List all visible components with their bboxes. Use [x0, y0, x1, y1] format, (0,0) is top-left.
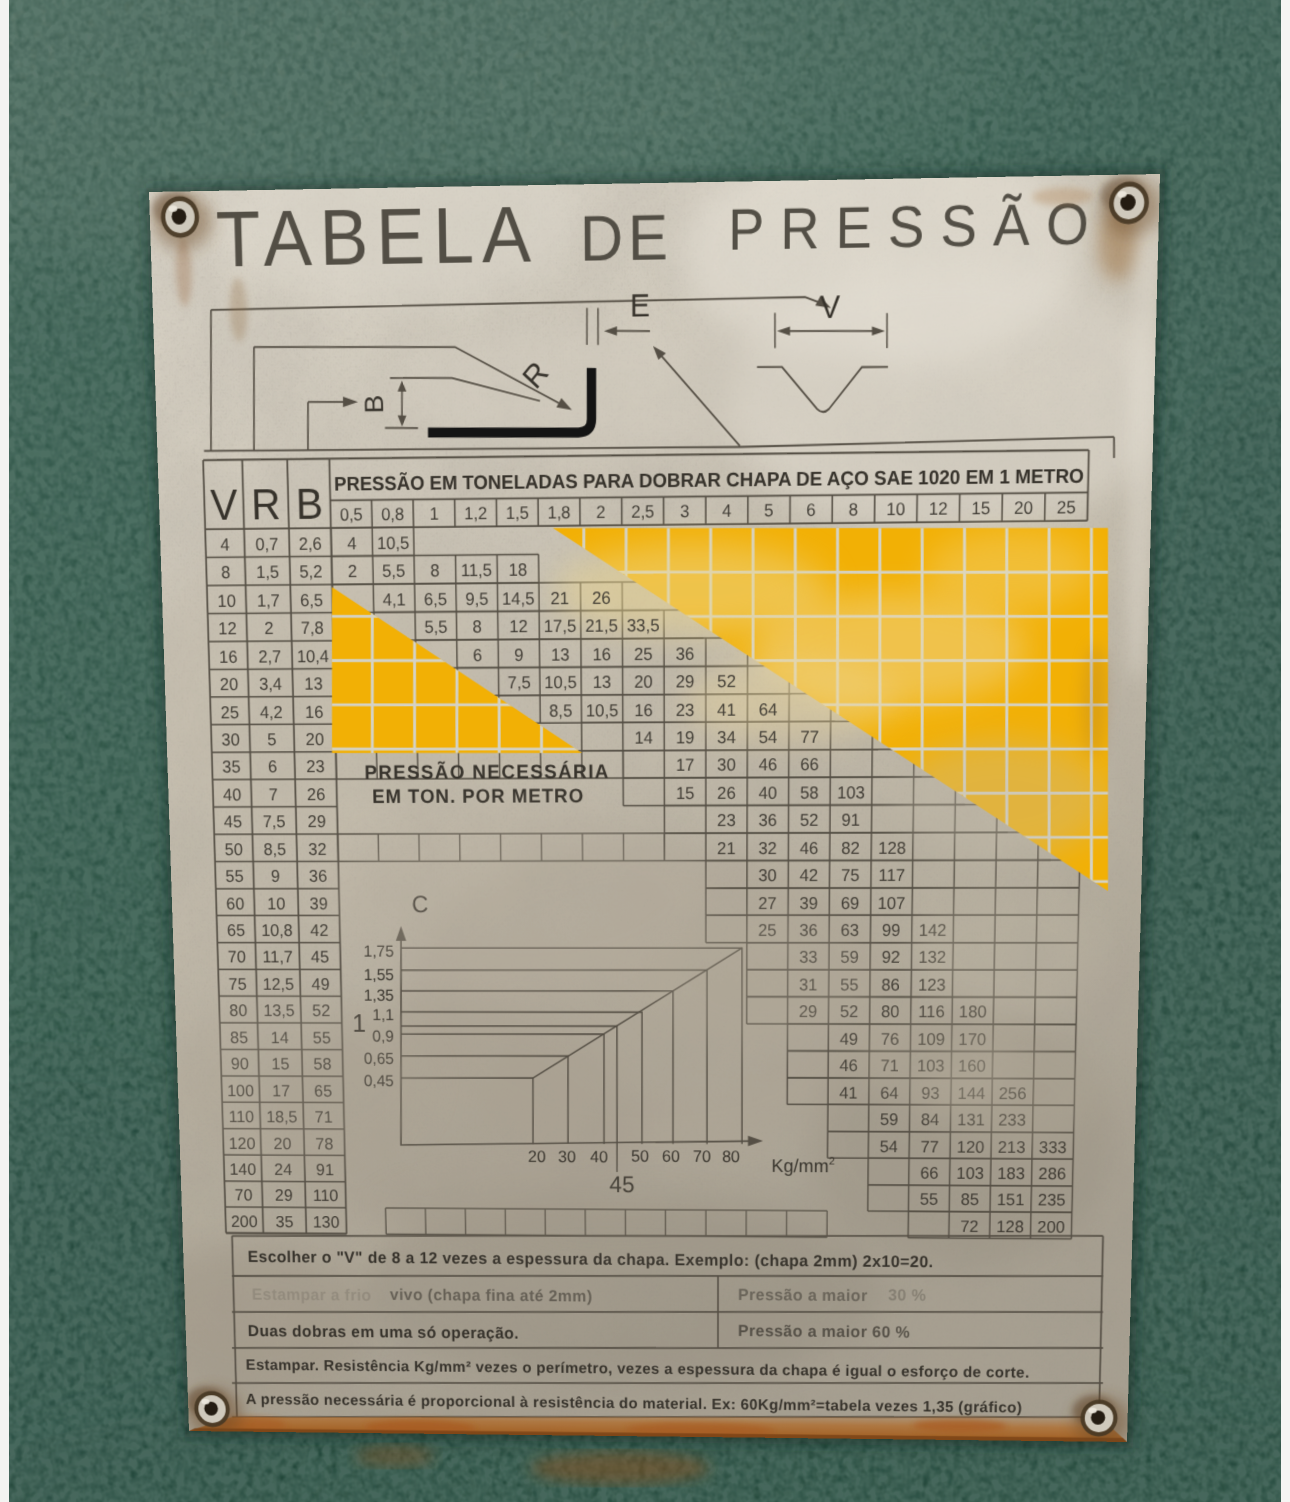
svg-text:25: 25: [1057, 497, 1076, 517]
svg-text:64: 64: [759, 699, 778, 720]
svg-text:10,4: 10,4: [297, 645, 330, 666]
svg-text:41: 41: [839, 1082, 857, 1102]
svg-text:151: 151: [997, 1190, 1025, 1210]
svg-text:13: 13: [593, 672, 612, 693]
svg-text:10,8: 10,8: [261, 920, 293, 940]
svg-text:9,5: 9,5: [465, 588, 488, 609]
svg-text:1,8: 1,8: [547, 502, 570, 522]
svg-text:29: 29: [676, 671, 695, 692]
svg-text:30: 30: [717, 755, 736, 775]
svg-text:1,5: 1,5: [256, 562, 280, 583]
svg-text:39: 39: [309, 893, 328, 913]
svg-text:1,7: 1,7: [257, 590, 280, 611]
svg-text:21: 21: [717, 838, 735, 858]
svg-text:13: 13: [551, 644, 570, 665]
svg-text:7,8: 7,8: [301, 618, 324, 639]
svg-text:25: 25: [634, 643, 653, 664]
svg-text:128: 128: [996, 1217, 1024, 1236]
svg-text:4: 4: [722, 501, 731, 521]
svg-text:99: 99: [882, 920, 901, 940]
svg-text:16: 16: [305, 701, 324, 721]
svg-text:1,55: 1,55: [363, 966, 394, 984]
svg-text:36: 36: [758, 810, 777, 830]
svg-text:72: 72: [960, 1216, 979, 1235]
svg-text:91: 91: [841, 810, 860, 830]
svg-text:15: 15: [971, 498, 990, 518]
svg-text:1: 1: [429, 504, 439, 524]
svg-text:46: 46: [800, 838, 819, 858]
svg-text:40: 40: [223, 784, 242, 804]
svg-text:2,7: 2,7: [258, 646, 281, 666]
svg-text:B: B: [359, 394, 389, 413]
svg-text:V: V: [210, 480, 238, 529]
svg-text:23: 23: [676, 699, 695, 719]
svg-text:16: 16: [219, 646, 238, 666]
svg-text:45: 45: [311, 947, 329, 967]
svg-text:86: 86: [881, 975, 900, 995]
svg-text:70: 70: [234, 1186, 252, 1205]
svg-text:41: 41: [717, 699, 736, 719]
svg-text:29: 29: [275, 1186, 293, 1205]
svg-text:128: 128: [878, 837, 906, 857]
svg-text:V: V: [820, 290, 840, 326]
svg-text:26: 26: [592, 587, 611, 608]
svg-text:14: 14: [634, 727, 653, 747]
svg-text:10,5: 10,5: [377, 532, 410, 553]
svg-text:1,2: 1,2: [464, 503, 487, 523]
svg-text:60: 60: [662, 1148, 680, 1166]
svg-text:2: 2: [348, 561, 358, 582]
svg-text:vivo (chapa fina até 2mm): vivo (chapa fina até 2mm): [390, 1286, 593, 1306]
svg-text:25: 25: [220, 702, 239, 722]
svg-text:12: 12: [218, 618, 237, 638]
svg-text:200: 200: [1037, 1217, 1065, 1236]
svg-text:69: 69: [841, 893, 860, 913]
svg-text:46: 46: [759, 755, 778, 775]
svg-text:4,2: 4,2: [260, 701, 283, 721]
svg-text:6: 6: [268, 757, 278, 777]
svg-text:11,5: 11,5: [461, 560, 493, 581]
svg-text:75: 75: [841, 865, 860, 885]
svg-text:20: 20: [1014, 498, 1033, 518]
svg-text:Estampar a frio: Estampar a frio: [252, 1286, 372, 1305]
svg-text:6,5: 6,5: [300, 590, 323, 611]
svg-text:85: 85: [960, 1190, 979, 1209]
svg-text:15: 15: [676, 783, 695, 803]
svg-text:23: 23: [306, 756, 325, 776]
svg-text:0,8: 0,8: [381, 504, 404, 524]
svg-text:59: 59: [880, 1109, 899, 1129]
svg-text:Pressão a maior 60 %: Pressão a maior 60 %: [738, 1322, 910, 1342]
svg-text:10: 10: [886, 499, 905, 519]
svg-text:35: 35: [275, 1212, 293, 1231]
svg-text:103: 103: [956, 1163, 984, 1183]
svg-text:130: 130: [313, 1212, 340, 1231]
svg-text:3: 3: [680, 501, 689, 521]
svg-text:27: 27: [758, 893, 777, 913]
svg-text:45: 45: [224, 812, 243, 832]
svg-text:70: 70: [228, 947, 246, 967]
svg-text:14,5: 14,5: [502, 588, 535, 609]
svg-text:6: 6: [806, 500, 815, 520]
svg-text:32: 32: [758, 838, 777, 858]
svg-text:183: 183: [997, 1163, 1025, 1183]
svg-text:50: 50: [631, 1147, 649, 1165]
svg-text:26: 26: [717, 782, 736, 802]
svg-text:21,5: 21,5: [585, 615, 618, 636]
svg-text:34: 34: [717, 727, 736, 747]
svg-text:10,5: 10,5: [586, 700, 619, 721]
svg-text:TABELA: TABELA: [215, 189, 539, 283]
svg-text:1,35: 1,35: [363, 987, 394, 1005]
svg-text:EM TON. POR METRO: EM TON. POR METRO: [372, 786, 584, 809]
svg-text:21: 21: [550, 587, 569, 608]
svg-text:20: 20: [634, 671, 653, 692]
svg-text:20: 20: [305, 729, 324, 749]
svg-text:60: 60: [226, 893, 245, 913]
svg-text:80: 80: [722, 1147, 740, 1165]
svg-text:110: 110: [313, 1186, 339, 1205]
svg-text:20: 20: [528, 1148, 546, 1166]
svg-text:10: 10: [217, 590, 236, 611]
svg-text:20: 20: [220, 674, 239, 694]
svg-text:Pressão a maior: Pressão a maior: [738, 1286, 868, 1305]
svg-text:5: 5: [764, 500, 773, 520]
svg-text:65: 65: [227, 920, 246, 940]
svg-text:7,5: 7,5: [508, 672, 531, 692]
svg-text:2: 2: [829, 1155, 835, 1167]
svg-text:39: 39: [799, 893, 818, 913]
svg-text:30 %: 30 %: [888, 1286, 926, 1304]
svg-text:235: 235: [1038, 1190, 1066, 1210]
svg-text:3,4: 3,4: [259, 674, 283, 694]
svg-text:13: 13: [304, 673, 323, 693]
svg-text:103: 103: [837, 782, 865, 802]
svg-text:10,5: 10,5: [544, 672, 577, 693]
svg-text:66: 66: [800, 754, 819, 774]
svg-text:35: 35: [222, 757, 241, 777]
svg-text:8: 8: [221, 562, 231, 583]
svg-text:117: 117: [878, 865, 905, 885]
svg-text:0,7: 0,7: [255, 533, 279, 554]
svg-text:75: 75: [228, 974, 246, 994]
svg-text:30: 30: [758, 865, 777, 885]
svg-text:8: 8: [430, 560, 440, 581]
svg-text:R: R: [251, 480, 282, 529]
svg-text:140: 140: [229, 1159, 256, 1178]
svg-text:66: 66: [920, 1163, 939, 1182]
svg-text:10: 10: [267, 893, 286, 913]
svg-text:40: 40: [590, 1148, 608, 1166]
svg-text:1,5: 1,5: [506, 503, 529, 523]
svg-text:0,5: 0,5: [340, 505, 363, 525]
svg-text:200: 200: [231, 1212, 258, 1231]
svg-text:30: 30: [221, 729, 240, 749]
svg-text:6,5: 6,5: [424, 588, 447, 609]
svg-text:9: 9: [514, 644, 523, 664]
svg-text:23: 23: [717, 810, 736, 830]
svg-text:7: 7: [269, 784, 279, 804]
svg-text:11,7: 11,7: [262, 947, 293, 967]
svg-text:4: 4: [347, 533, 357, 554]
svg-text:12: 12: [929, 499, 948, 519]
svg-text:42: 42: [800, 865, 819, 885]
svg-text:26: 26: [307, 784, 326, 804]
svg-text:17,5: 17,5: [544, 616, 577, 637]
svg-text:286: 286: [1038, 1164, 1066, 1184]
svg-text:16: 16: [634, 699, 653, 719]
svg-text:B: B: [295, 480, 323, 529]
svg-text:42: 42: [310, 920, 328, 940]
svg-text:8: 8: [849, 499, 859, 519]
svg-text:29: 29: [307, 811, 326, 831]
svg-text:12: 12: [509, 616, 528, 637]
svg-text:30: 30: [558, 1147, 576, 1165]
svg-text:49: 49: [840, 1029, 859, 1049]
svg-text:55: 55: [225, 866, 244, 886]
svg-text:19: 19: [676, 727, 695, 747]
svg-text:8,5: 8,5: [549, 700, 572, 720]
svg-text:2,5: 2,5: [631, 502, 654, 522]
svg-text:50: 50: [224, 839, 243, 859]
svg-text:77: 77: [920, 1136, 939, 1156]
svg-text:5,5: 5,5: [424, 617, 447, 638]
svg-text:58: 58: [800, 782, 819, 802]
svg-text:8: 8: [472, 616, 482, 637]
svg-text:33,5: 33,5: [627, 615, 660, 636]
svg-text:9: 9: [271, 866, 281, 886]
svg-text:8,5: 8,5: [263, 839, 286, 859]
svg-text:17: 17: [676, 755, 695, 775]
svg-text:5,2: 5,2: [299, 561, 323, 582]
svg-text:54: 54: [880, 1136, 899, 1156]
svg-text:107: 107: [877, 893, 905, 913]
svg-text:5,5: 5,5: [382, 561, 405, 582]
svg-text:36: 36: [676, 643, 695, 664]
svg-text:49: 49: [311, 974, 329, 994]
svg-text:77: 77: [800, 726, 819, 746]
svg-text:18: 18: [508, 559, 527, 580]
svg-text:Kg/mm: Kg/mm: [771, 1156, 828, 1177]
svg-text:2,6: 2,6: [298, 533, 322, 554]
svg-text:DE: DE: [580, 201, 673, 275]
svg-text:E: E: [630, 288, 650, 324]
svg-text:16: 16: [592, 643, 611, 664]
svg-text:55: 55: [920, 1190, 939, 1209]
svg-text:6: 6: [473, 644, 483, 664]
svg-text:40: 40: [759, 782, 778, 802]
svg-text:32: 32: [308, 839, 327, 859]
svg-text:52: 52: [800, 810, 819, 830]
svg-text:52: 52: [717, 671, 736, 692]
svg-text:2: 2: [264, 618, 274, 638]
svg-text:PRESSÃO NECESSÁRIA: PRESSÃO NECESSÁRIA: [364, 760, 610, 784]
svg-text:36: 36: [309, 866, 328, 886]
svg-text:92: 92: [882, 947, 901, 967]
svg-text:4: 4: [220, 534, 230, 555]
svg-text:Duas dobras em uma só operação: Duas dobras em uma só operação.: [248, 1322, 520, 1342]
svg-text:82: 82: [841, 837, 860, 857]
svg-text:4,1: 4,1: [382, 589, 405, 610]
svg-text:7,5: 7,5: [263, 812, 286, 832]
svg-text:2: 2: [596, 502, 605, 522]
svg-text:5: 5: [267, 729, 277, 749]
svg-text:12,5: 12,5: [262, 974, 294, 994]
svg-text:54: 54: [759, 727, 778, 747]
svg-text:70: 70: [693, 1147, 711, 1165]
